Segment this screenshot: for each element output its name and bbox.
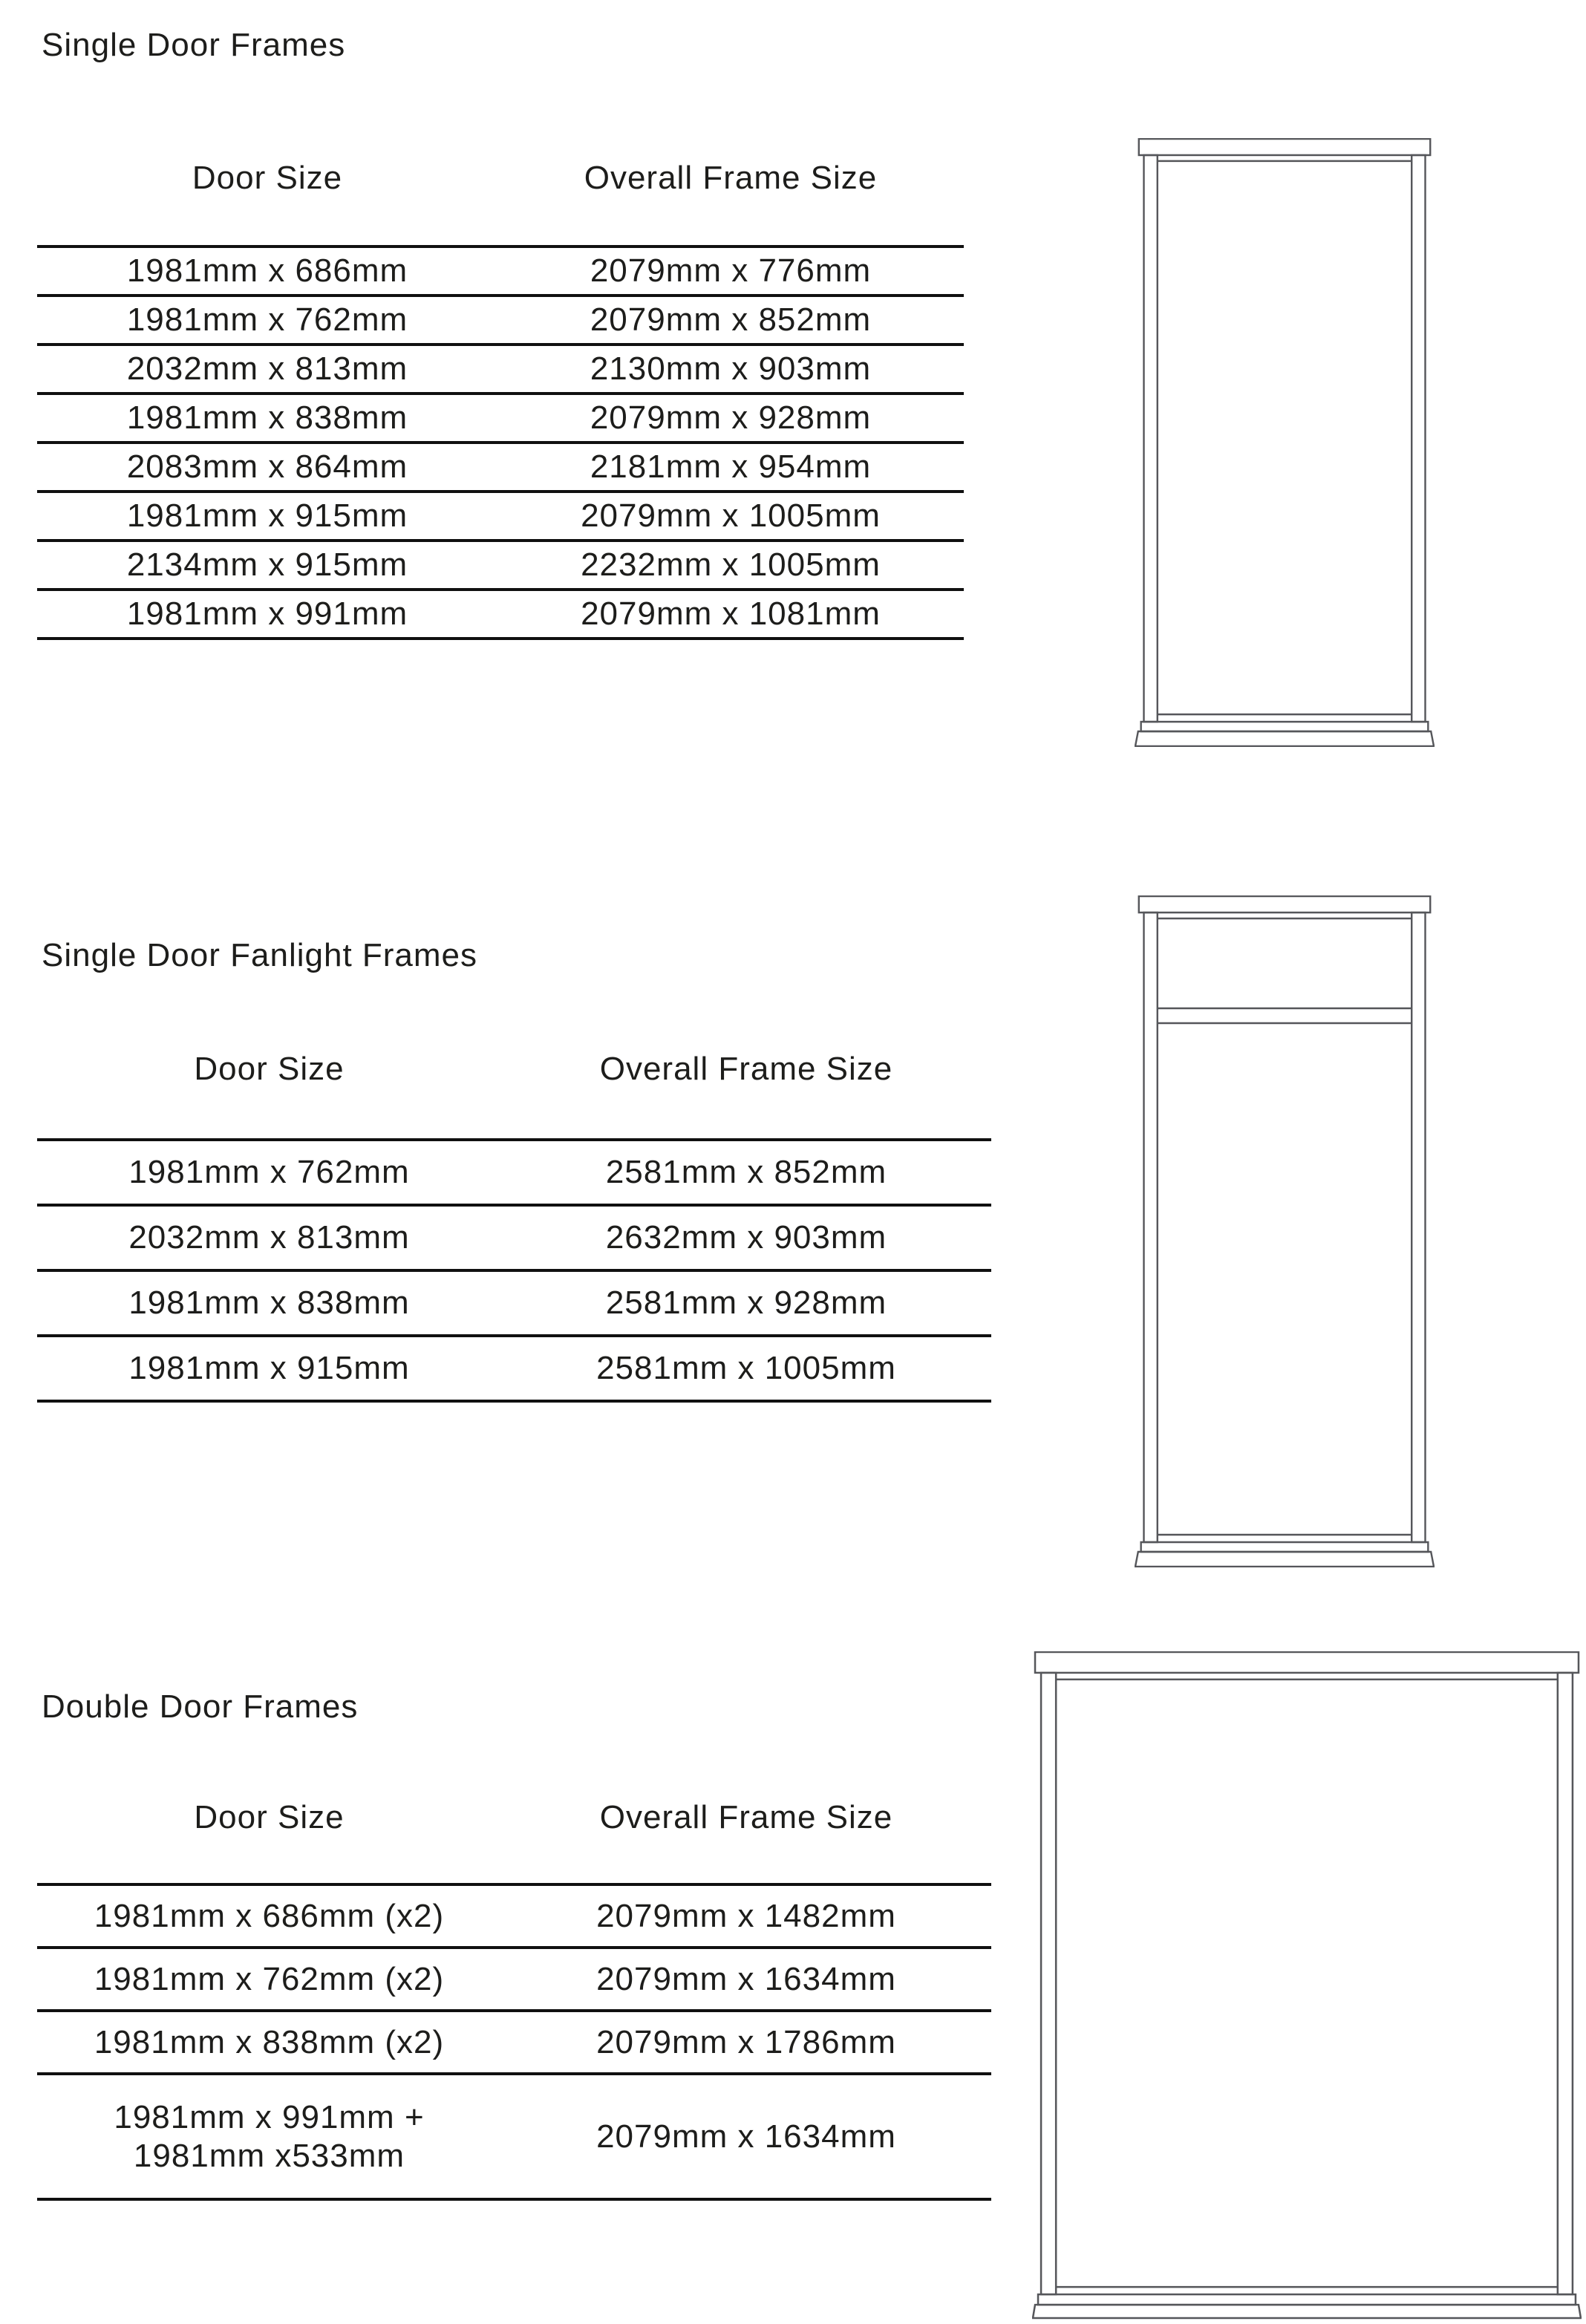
column-header-door-size: Door Size bbox=[37, 1799, 501, 1836]
door-size-value: 1981mm x 991mm + 1981mm x533mm bbox=[37, 2098, 501, 2176]
table-row: 2083mm x 864mm 2181mm x 954mm bbox=[37, 444, 964, 493]
door-size-value: 2134mm x 915mm bbox=[37, 546, 497, 584]
door-size-value: 1981mm x 686mm (x2) bbox=[37, 1897, 501, 1936]
column-header-door-size: Door Size bbox=[37, 1051, 501, 1088]
frame-size-value: 2581mm x 928mm bbox=[501, 1284, 991, 1322]
frame-size-value: 2079mm x 1634mm bbox=[501, 2118, 991, 2156]
table-row: 1981mm x 762mm 2581mm x 852mm bbox=[37, 1141, 991, 1207]
section-title-single-door-frames: Single Door Frames bbox=[42, 27, 345, 64]
door-size-value: 1981mm x 838mm bbox=[37, 399, 497, 437]
table-header-single: Door Size Overall Frame Size bbox=[37, 160, 964, 197]
single-door-fanlight-frame-diagram bbox=[1135, 895, 1435, 1567]
table-row: 2032mm x 813mm 2632mm x 903mm bbox=[37, 1207, 991, 1272]
single-door-fanlight-frames-table: 1981mm x 762mm 2581mm x 852mm 2032mm x 8… bbox=[37, 1138, 991, 1403]
door-size-value: 1981mm x 762mm bbox=[37, 1153, 501, 1192]
door-size-line-2: 1981mm x533mm bbox=[37, 2137, 501, 2176]
door-size-value: 1981mm x 762mm (x2) bbox=[37, 1960, 501, 1999]
door-size-value: 1981mm x 686mm bbox=[37, 252, 497, 290]
table-row: 1981mm x 686mm 2079mm x 776mm bbox=[37, 248, 964, 297]
table-row: 1981mm x 915mm 2581mm x 1005mm bbox=[37, 1337, 991, 1403]
section-title-single-door-fanlight-frames: Single Door Fanlight Frames bbox=[42, 937, 477, 974]
door-size-value: 1981mm x 915mm bbox=[37, 1349, 501, 1388]
frame-size-value: 2079mm x 1005mm bbox=[497, 497, 964, 535]
table-row: 1981mm x 991mm + 1981mm x533mm 2079mm x … bbox=[37, 2075, 991, 2201]
frame-size-value: 2079mm x 1634mm bbox=[501, 1960, 991, 1999]
door-size-value: 1981mm x 838mm (x2) bbox=[37, 2023, 501, 2062]
frame-size-value: 2079mm x 1786mm bbox=[501, 2023, 991, 2062]
frame-size-value: 2581mm x 852mm bbox=[501, 1153, 991, 1192]
table-row: 1981mm x 991mm 2079mm x 1081mm bbox=[37, 591, 964, 640]
door-size-value: 1981mm x 762mm bbox=[37, 301, 497, 339]
column-header-overall-frame-size: Overall Frame Size bbox=[501, 1051, 991, 1088]
table-row: 1981mm x 915mm 2079mm x 1005mm bbox=[37, 493, 964, 542]
column-header-overall-frame-size: Overall Frame Size bbox=[501, 1799, 991, 1836]
frame-size-value: 2632mm x 903mm bbox=[501, 1218, 991, 1257]
door-size-value: 2032mm x 813mm bbox=[37, 1218, 501, 1257]
frame-size-value: 2079mm x 852mm bbox=[497, 301, 964, 339]
frame-size-value: 2079mm x 1482mm bbox=[501, 1897, 991, 1936]
door-size-value: 2032mm x 813mm bbox=[37, 350, 497, 388]
table-row: 2032mm x 813mm 2130mm x 903mm bbox=[37, 346, 964, 395]
table-row: 1981mm x 838mm 2581mm x 928mm bbox=[37, 1272, 991, 1337]
single-door-frame-diagram bbox=[1135, 138, 1435, 747]
door-size-value: 2083mm x 864mm bbox=[37, 448, 497, 486]
door-size-value: 1981mm x 838mm bbox=[37, 1284, 501, 1322]
door-size-value: 1981mm x 991mm bbox=[37, 595, 497, 633]
single-door-frames-table: 1981mm x 686mm 2079mm x 776mm 1981mm x 7… bbox=[37, 245, 964, 640]
table-row: 1981mm x 838mm 2079mm x 928mm bbox=[37, 395, 964, 444]
frame-size-value: 2079mm x 1081mm bbox=[497, 595, 964, 633]
table-row: 1981mm x 686mm (x2) 2079mm x 1482mm bbox=[37, 1886, 991, 1949]
frame-size-value: 2130mm x 903mm bbox=[497, 350, 964, 388]
table-row: 1981mm x 762mm 2079mm x 852mm bbox=[37, 297, 964, 346]
table-header-double: Door Size Overall Frame Size bbox=[37, 1799, 991, 1836]
section-title-double-door-frames: Double Door Frames bbox=[42, 1688, 358, 1726]
frame-size-value: 2181mm x 954mm bbox=[497, 448, 964, 486]
frame-size-value: 2079mm x 928mm bbox=[497, 399, 964, 437]
table-row: 1981mm x 838mm (x2) 2079mm x 1786mm bbox=[37, 2012, 991, 2075]
double-door-frames-table: 1981mm x 686mm (x2) 2079mm x 1482mm 1981… bbox=[37, 1883, 991, 2201]
column-header-overall-frame-size: Overall Frame Size bbox=[497, 160, 964, 197]
table-row: 2134mm x 915mm 2232mm x 1005mm bbox=[37, 542, 964, 591]
table-row: 1981mm x 762mm (x2) 2079mm x 1634mm bbox=[37, 1949, 991, 2012]
door-frame-spec-page: { "page": { "background": "#ffffff", "te… bbox=[0, 0, 1586, 2324]
column-header-door-size: Door Size bbox=[37, 160, 497, 197]
door-size-value: 1981mm x 915mm bbox=[37, 497, 497, 535]
frame-size-value: 2581mm x 1005mm bbox=[501, 1349, 991, 1388]
table-header-fanlight: Door Size Overall Frame Size bbox=[37, 1051, 991, 1088]
double-door-frame-diagram bbox=[1032, 1651, 1582, 2320]
frame-size-value: 2079mm x 776mm bbox=[497, 252, 964, 290]
door-size-line-1: 1981mm x 991mm + bbox=[37, 2098, 501, 2137]
frame-size-value: 2232mm x 1005mm bbox=[497, 546, 964, 584]
